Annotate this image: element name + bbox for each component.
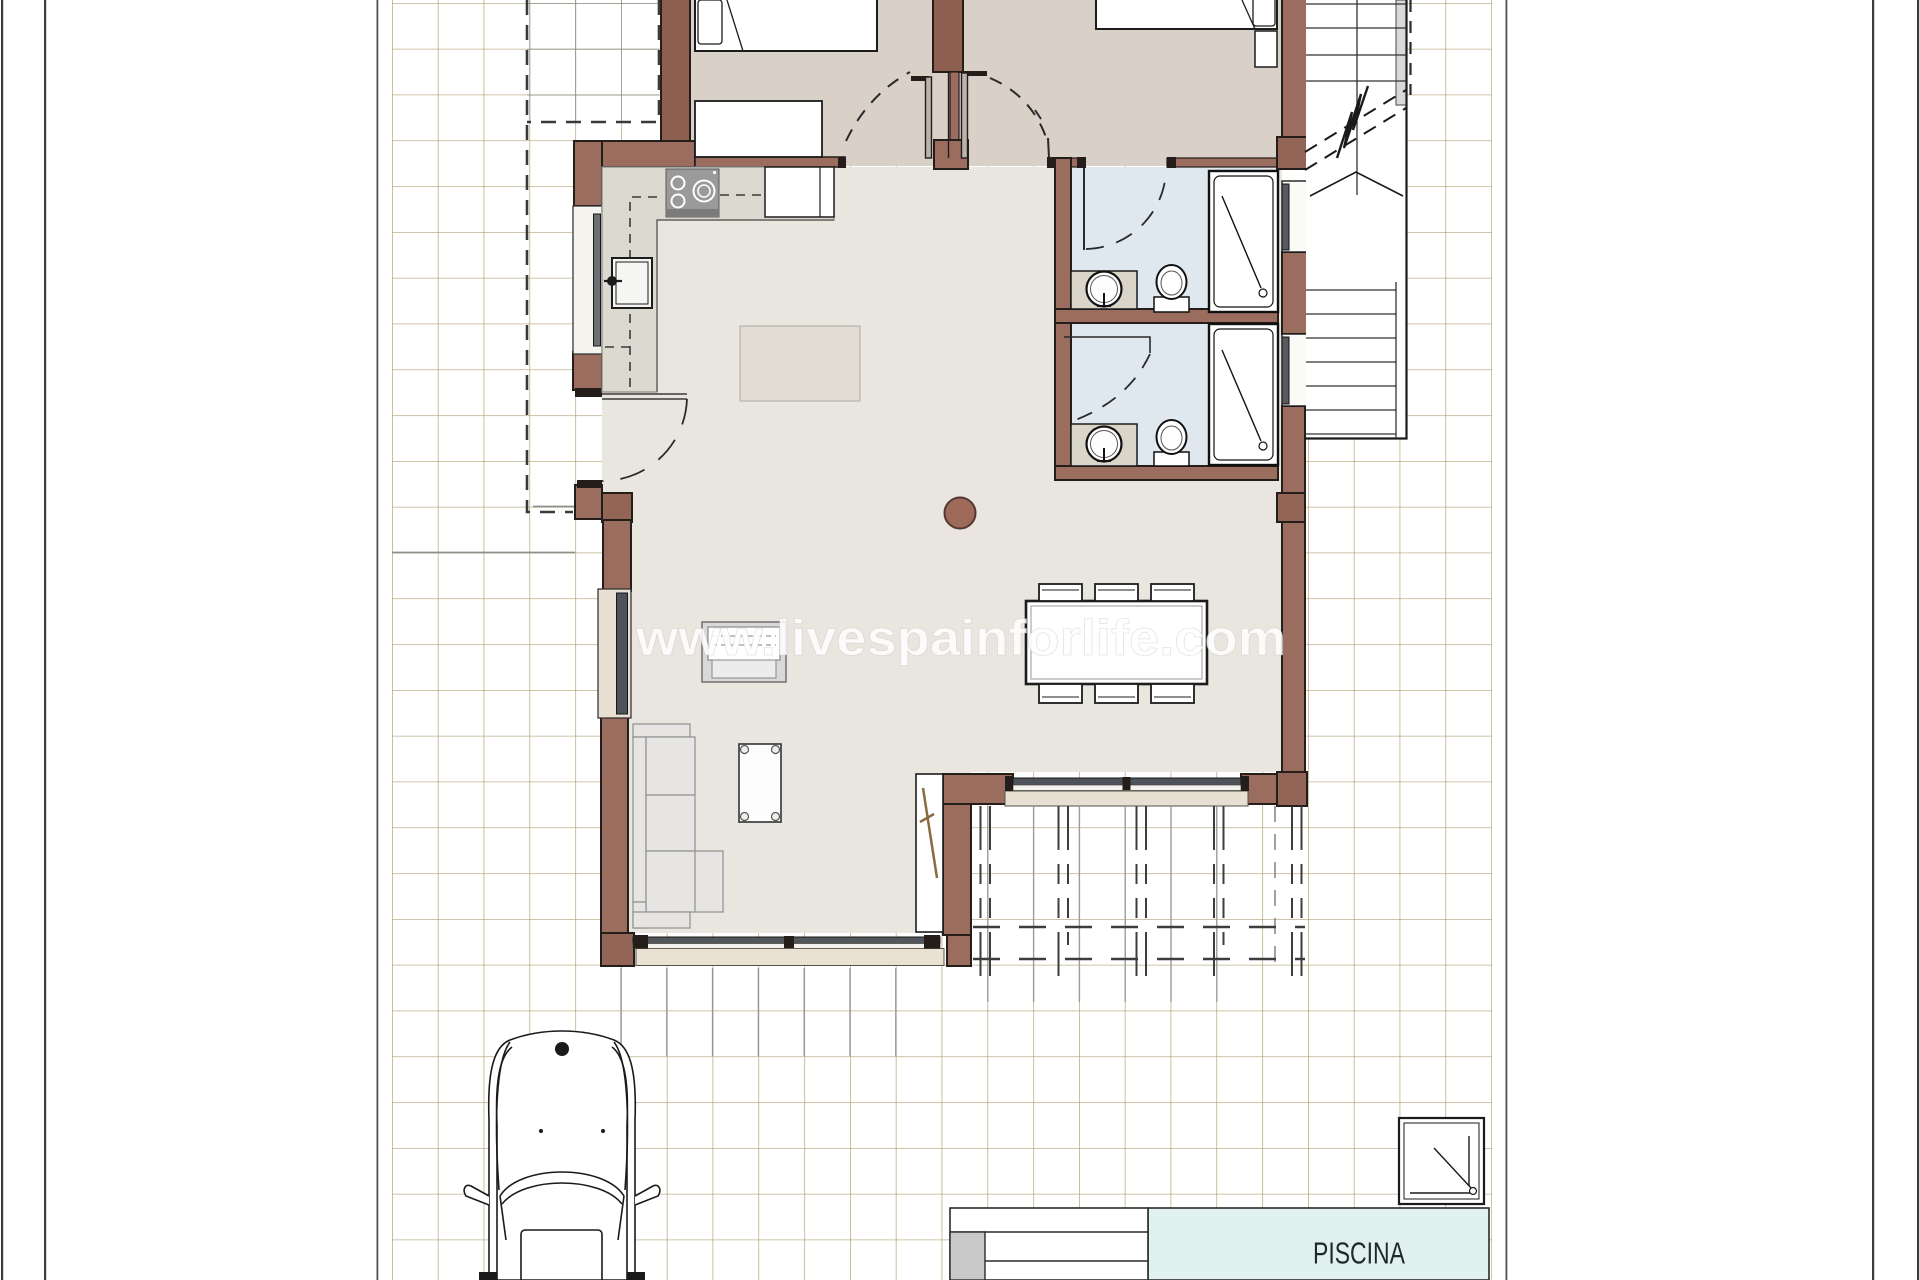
- svg-text:PISCINA: PISCINA: [1313, 1236, 1405, 1271]
- svg-text:www.livespainforlife.com: www.livespainforlife.com: [635, 610, 1286, 666]
